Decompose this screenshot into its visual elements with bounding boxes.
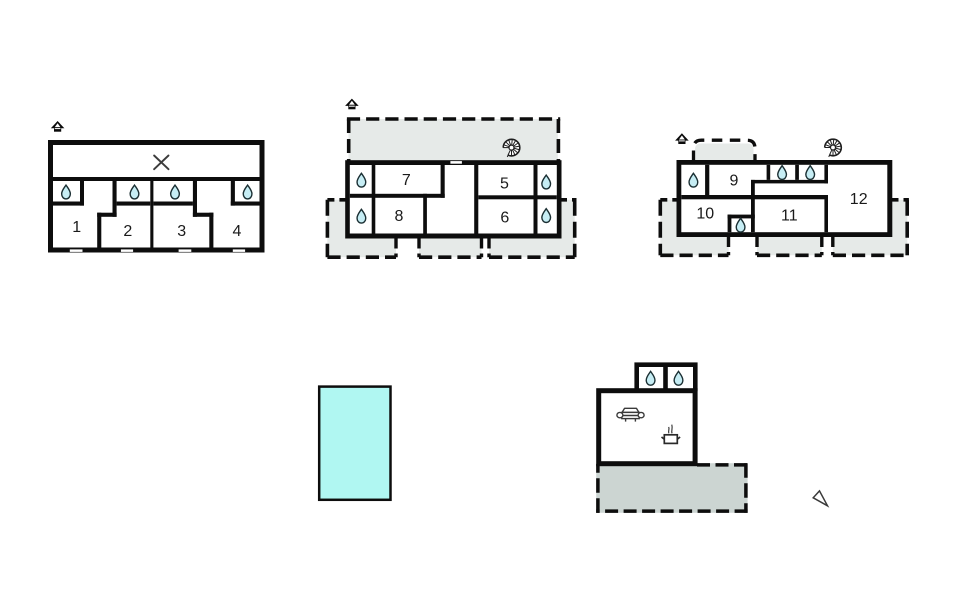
svg-text:7: 7	[402, 172, 411, 189]
svg-text:6: 6	[500, 210, 509, 227]
svg-text:10: 10	[696, 205, 714, 222]
svg-text:11: 11	[781, 208, 798, 225]
svg-text:2: 2	[123, 223, 132, 240]
svg-text:8: 8	[394, 208, 403, 225]
svg-text:5: 5	[500, 175, 509, 192]
svg-text:1: 1	[72, 219, 81, 236]
svg-text:4: 4	[232, 223, 241, 240]
svg-text:3: 3	[177, 223, 186, 240]
svg-text:9: 9	[730, 172, 739, 189]
svg-text:12: 12	[850, 191, 868, 208]
